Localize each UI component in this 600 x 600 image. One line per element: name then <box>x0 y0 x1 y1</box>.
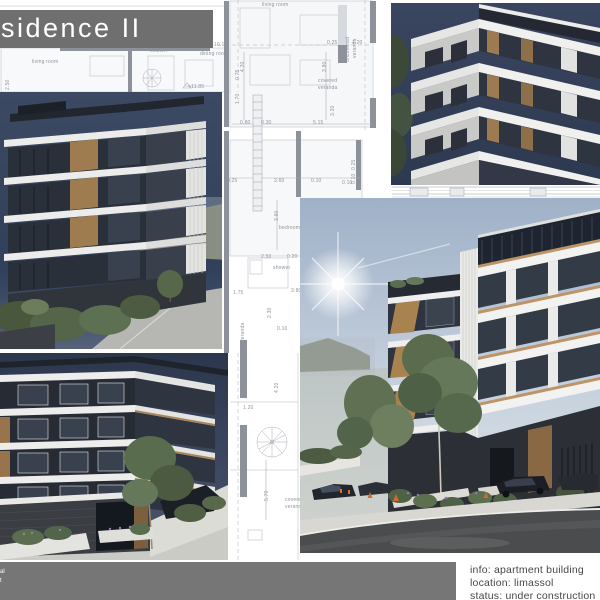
title-banner: sidence II <box>0 10 213 48</box>
plan-label: veranda <box>318 86 337 91</box>
plan-label: 1.20 <box>352 41 363 46</box>
plan-label: 3.80 <box>323 61 328 72</box>
footer-text-fragment: al <box>0 569 5 575</box>
plan-label: living room <box>262 3 288 8</box>
project-title: sidence II <box>1 13 142 43</box>
info-line: status: under construction <box>470 590 595 600</box>
plan-label: bedroom <box>279 226 300 231</box>
plan-label: uncovered <box>346 37 351 62</box>
plan-label: 3.60 <box>274 179 285 184</box>
plan-label: 5.15 <box>313 121 324 126</box>
plan-label: shower <box>273 266 290 271</box>
plan-label: 2.50 <box>6 79 11 90</box>
plan-label: 3.20 <box>331 105 336 116</box>
plan-label: 0.75 <box>236 69 241 80</box>
render-bottom-left-dusk-view <box>0 353 228 560</box>
plan-label: kitchen <box>150 49 167 54</box>
render-top-left-dusk-view <box>0 92 222 349</box>
presentation-board: living roomuncoveredveranda4.203.800.251… <box>0 0 600 600</box>
plan-label: 4.20 <box>241 61 246 72</box>
plan-label: 10.10 <box>214 43 228 48</box>
plan-label: 4.20 <box>275 382 280 393</box>
plan-label: +11.85 <box>188 85 204 90</box>
plan-label: dining room <box>200 52 228 57</box>
plan-elevation-strip <box>392 187 600 197</box>
plan-label: 0.25 <box>352 159 357 170</box>
plan-label: 2.50 <box>261 255 272 260</box>
plan-label: 0.20 <box>287 255 298 260</box>
plan-label: 0.10 <box>277 327 288 332</box>
info-line: location: limassol <box>470 577 595 590</box>
plan-label: 3.60 <box>275 210 280 221</box>
plan-label: 1.75 <box>233 291 244 296</box>
spiral-stair-large-icon <box>257 427 287 457</box>
plan-label: 1.70 <box>236 93 241 104</box>
plan-label: covered <box>318 79 337 84</box>
plan-label: 0.25 <box>227 179 238 184</box>
plan-label: 2.30 <box>268 307 273 318</box>
footer-banner: al t <box>0 562 456 600</box>
render-top-right-corner-view <box>391 3 600 185</box>
plan-label: 5.70 <box>265 490 270 501</box>
project-info: info: apartment building location: limas… <box>470 564 595 600</box>
plan-label: 1.20 <box>243 406 254 411</box>
spiral-stair-top-icon <box>143 69 161 87</box>
plan-label: 0.10 <box>352 173 357 184</box>
plan-label: living room <box>32 60 58 65</box>
render-main-daylight-view <box>300 198 600 553</box>
footer-text-fragment: t <box>0 578 2 584</box>
plan-label: 0.25 <box>327 41 338 46</box>
plan-label: veranda <box>241 323 246 342</box>
plan-label: 0.30 <box>261 121 272 126</box>
plan-label: 0.10 <box>311 179 322 184</box>
info-line: info: apartment building <box>470 564 595 577</box>
plan-label: 0.80 <box>240 121 251 126</box>
